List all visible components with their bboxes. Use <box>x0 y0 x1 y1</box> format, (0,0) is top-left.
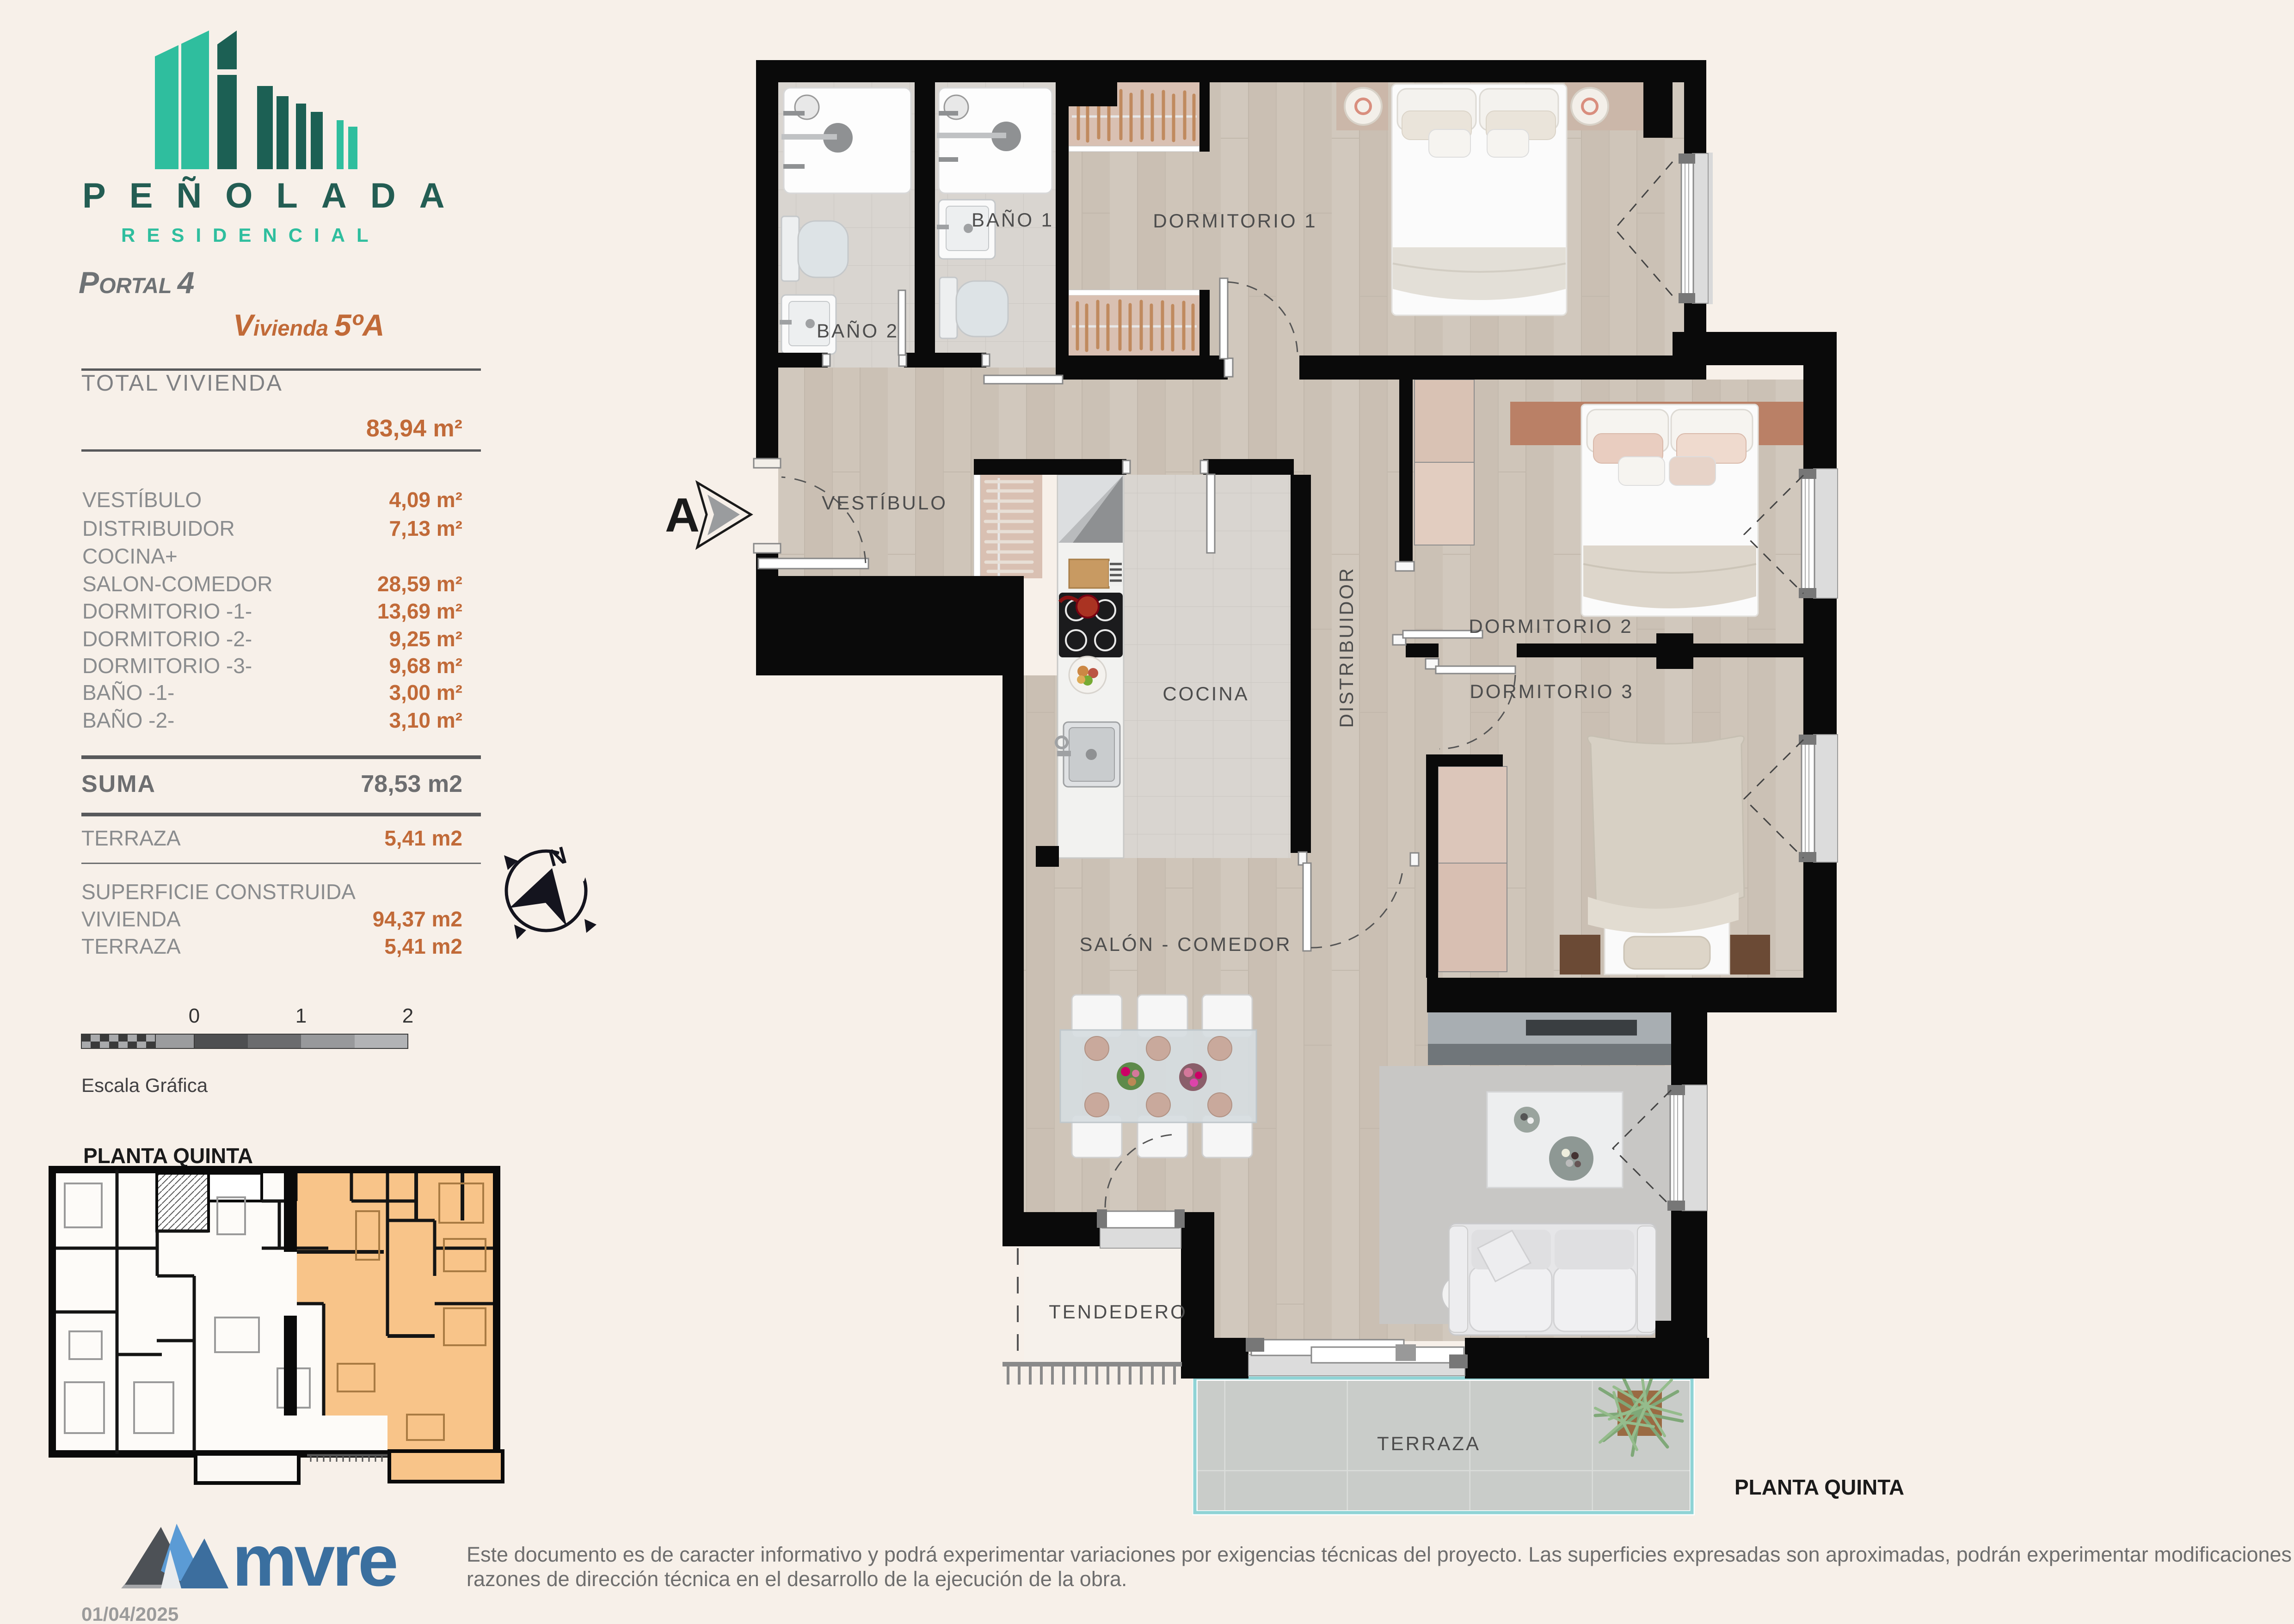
svg-text:9,25 m²: 9,25 m² <box>389 627 462 651</box>
svg-text:mvre: mvre <box>232 1520 396 1601</box>
svg-text:DORMITORIO 3: DORMITORIO 3 <box>1470 680 1634 702</box>
svg-text:VIVIENDA: VIVIENDA <box>81 907 181 931</box>
svg-text:razones de dirección técnica e: razones de dirección técnica en el desar… <box>467 1567 1127 1591</box>
svg-text:SALÓN - COMEDOR: SALÓN - COMEDOR <box>1079 933 1292 955</box>
svg-text:PLANTA QUINTA: PLANTA QUINTA <box>83 1144 253 1168</box>
svg-text:5,41 m2: 5,41 m2 <box>384 826 462 850</box>
svg-text:SUMA: SUMA <box>81 771 156 797</box>
svg-text:DORMITORIO -2-: DORMITORIO -2- <box>82 627 252 651</box>
svg-text:PLANTA QUINTA: PLANTA QUINTA <box>1734 1475 1904 1499</box>
svg-text:BAÑO 2: BAÑO 2 <box>817 320 899 342</box>
svg-text:7,13 m²: 7,13 m² <box>389 516 462 540</box>
svg-text:A: A <box>665 489 700 542</box>
svg-text:2: 2 <box>402 1005 413 1027</box>
svg-text:BAÑO -2-: BAÑO -2- <box>82 708 174 732</box>
svg-text:VESTÍBULO: VESTÍBULO <box>82 488 202 512</box>
svg-text:TOTAL VIVIENDA: TOTAL VIVIENDA <box>81 371 283 396</box>
svg-text:DISTRIBUIDOR: DISTRIBUIDOR <box>82 516 235 540</box>
svg-text:5,41 m2: 5,41 m2 <box>384 934 462 958</box>
svg-text:13,69 m²: 13,69 m² <box>377 599 462 623</box>
svg-text:DORMITORIO 1: DORMITORIO 1 <box>1153 210 1317 232</box>
svg-text:Este documento es de caracter: Este documento es de caracter informativ… <box>467 1543 2294 1566</box>
svg-text:Escala Gráfica: Escala Gráfica <box>81 1074 208 1096</box>
svg-text:DORMITORIO -1-: DORMITORIO -1- <box>82 599 252 623</box>
svg-text:1: 1 <box>295 1005 307 1027</box>
svg-text:COCINA+: COCINA+ <box>82 544 178 568</box>
svg-text:BAÑO 1: BAÑO 1 <box>972 209 1054 231</box>
svg-text:SALON-COMEDOR: SALON-COMEDOR <box>82 572 272 596</box>
svg-text:4,09 m²: 4,09 m² <box>389 488 462 512</box>
svg-text:DORMITORIO 2: DORMITORIO 2 <box>1469 615 1633 637</box>
svg-text:94,37 m2: 94,37 m2 <box>373 907 462 931</box>
svg-text:TERRAZA: TERRAZA <box>81 934 181 958</box>
svg-text:DISTRIBUIDOR: DISTRIBUIDOR <box>1335 566 1357 728</box>
svg-text:RESIDENCIAL: RESIDENCIAL <box>121 224 380 246</box>
svg-text:COCINA: COCINA <box>1162 683 1249 705</box>
svg-text:TERRAZA: TERRAZA <box>1377 1433 1481 1454</box>
svg-text:DORMITORIO -3-: DORMITORIO -3- <box>82 654 252 678</box>
svg-text:3,00 m²: 3,00 m² <box>389 680 462 705</box>
svg-text:78,53 m2: 78,53 m2 <box>361 771 462 797</box>
svg-text:VESTÍBULO: VESTÍBULO <box>822 492 947 514</box>
svg-text:28,59 m²: 28,59 m² <box>377 572 462 596</box>
svg-text:PEÑOLADA: PEÑOLADA <box>82 176 468 215</box>
svg-text:01/04/2025: 01/04/2025 <box>81 1603 178 1622</box>
svg-text:TERRAZA: TERRAZA <box>81 826 181 850</box>
svg-text:3,10 m²: 3,10 m² <box>389 708 462 732</box>
svg-text:BAÑO -1-: BAÑO -1- <box>82 680 174 705</box>
svg-text:83,94 m²: 83,94 m² <box>366 415 462 442</box>
svg-text:9,68 m²: 9,68 m² <box>389 654 462 678</box>
svg-text:SUPERFICIE CONSTRUIDA: SUPERFICIE CONSTRUIDA <box>81 880 356 904</box>
svg-text:0: 0 <box>189 1005 200 1027</box>
svg-text:TENDEDERO: TENDEDERO <box>1049 1301 1187 1323</box>
